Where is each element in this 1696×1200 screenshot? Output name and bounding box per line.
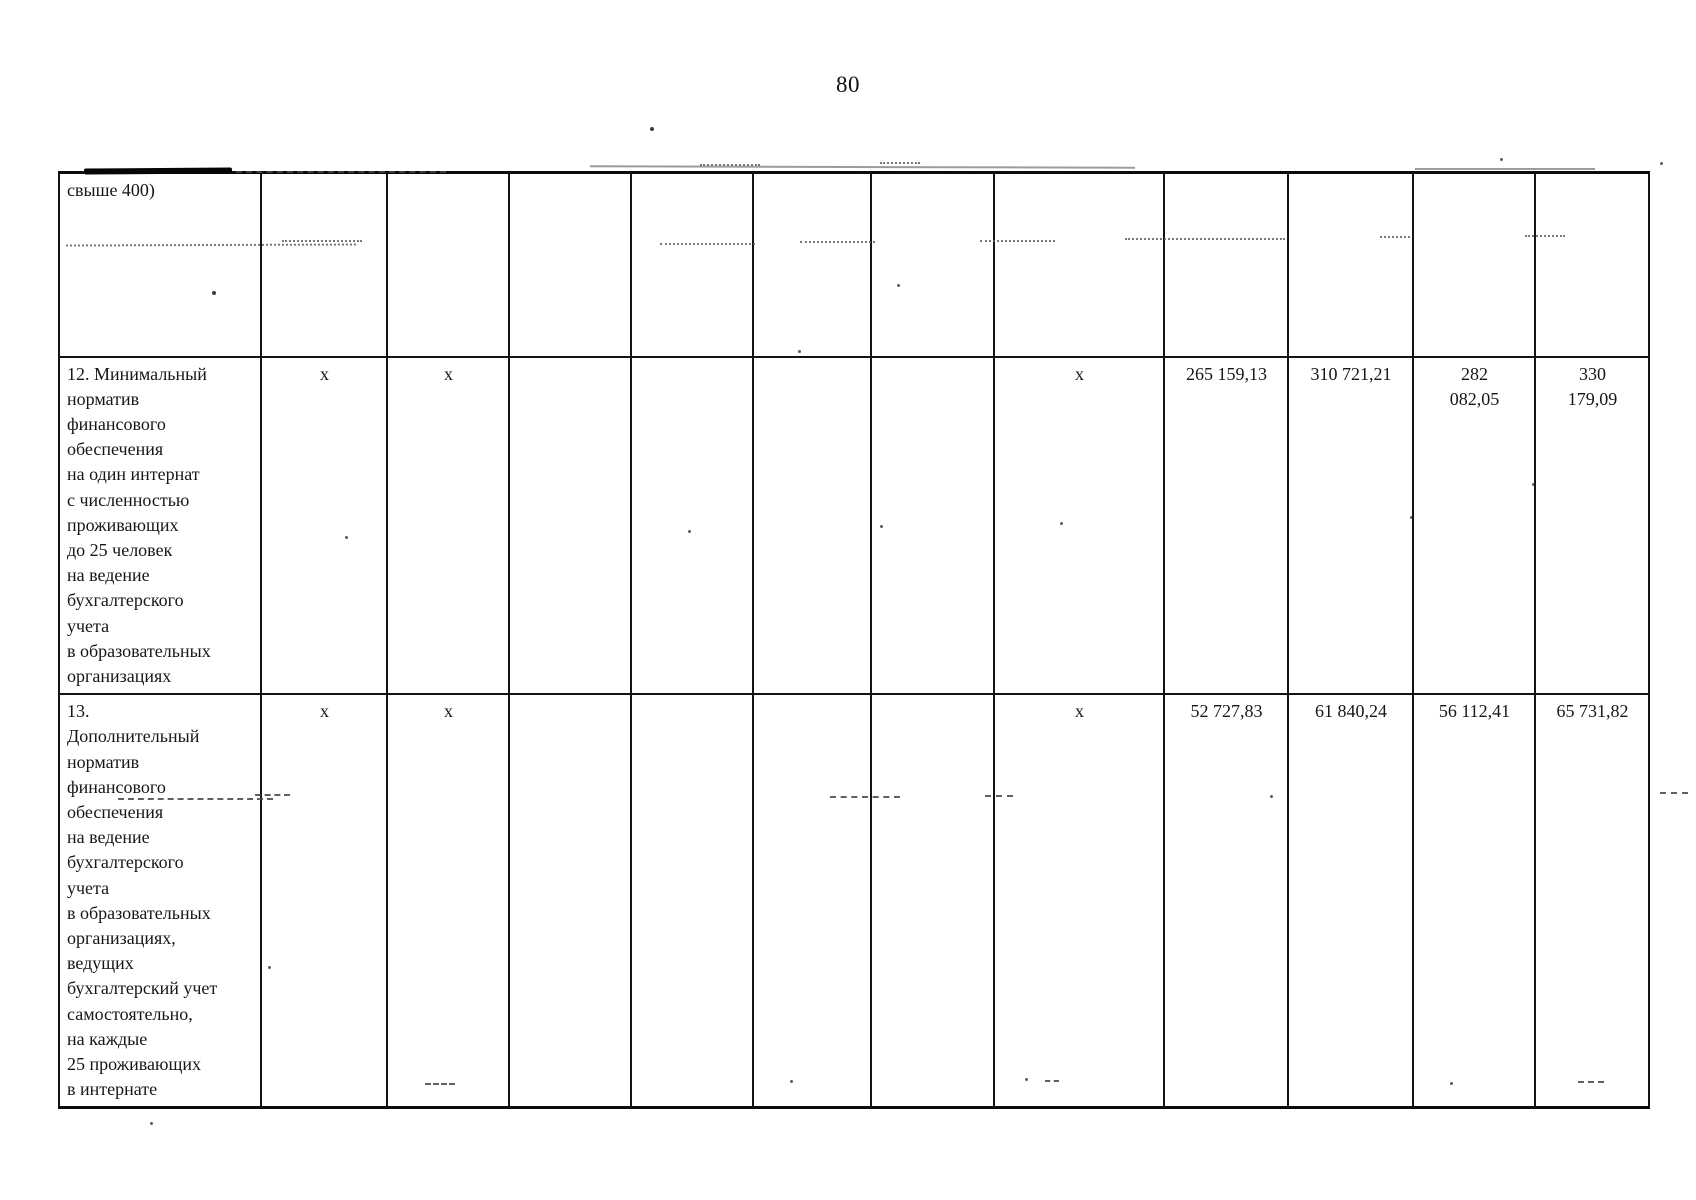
scan-artifact — [700, 164, 760, 166]
table-cell — [261, 173, 387, 357]
table-cell: 265 159,13 — [1164, 357, 1288, 695]
table-cell — [994, 173, 1164, 357]
page-number: 80 — [0, 72, 1696, 98]
table-cell: 61 840,24 — [1288, 694, 1413, 1108]
table-cell — [1535, 173, 1649, 357]
table-cell: 12. Минимальный норматив финансового обе… — [59, 357, 261, 695]
table-cell — [871, 173, 994, 357]
table-cell: 56 112,41 — [1413, 694, 1535, 1108]
table-cell: 282 082,05 — [1413, 357, 1535, 695]
table-cell: х — [261, 357, 387, 695]
table-row-13: 13. Дополнительный норматив финансового … — [59, 694, 1649, 1108]
table-cell: 65 731,82 — [1535, 694, 1649, 1108]
table-cell: х — [994, 694, 1164, 1108]
table-cell — [753, 173, 871, 357]
scan-artifact — [1660, 162, 1663, 165]
scan-artifact — [1415, 168, 1595, 170]
scan-artifact — [650, 127, 654, 131]
table-cell: свыше 400) — [59, 173, 261, 357]
table-cell: 52 727,83 — [1164, 694, 1288, 1108]
scan-artifact — [150, 1122, 153, 1125]
table-cell: 310 721,21 — [1288, 357, 1413, 695]
table-cell — [631, 173, 753, 357]
table-cell — [1164, 173, 1288, 357]
table-cell — [871, 694, 994, 1108]
table-row-continuation: свыше 400) — [59, 173, 1649, 357]
table-cell — [509, 694, 631, 1108]
scan-artifact — [880, 162, 920, 164]
table-cell: х — [387, 694, 509, 1108]
table-cell — [631, 694, 753, 1108]
table-cell: х — [261, 694, 387, 1108]
table-cell — [387, 173, 509, 357]
table-cell: 330 179,09 — [1535, 357, 1649, 695]
table-cell — [1413, 173, 1535, 357]
table-cell — [509, 173, 631, 357]
table-cell: х — [994, 357, 1164, 695]
normatives-table: свыше 400) 12. Минимальный норматив фина… — [58, 171, 1650, 1109]
scan-artifact — [1660, 792, 1688, 794]
table-cell — [753, 357, 871, 695]
scan-artifact — [1500, 158, 1503, 161]
table-row-12: 12. Минимальный норматив финансового обе… — [59, 357, 1649, 695]
table-cell: 13. Дополнительный норматив финансового … — [59, 694, 261, 1108]
table-cell — [753, 694, 871, 1108]
table-cell — [509, 357, 631, 695]
table-cell — [1288, 173, 1413, 357]
scan-artifact — [590, 165, 1135, 168]
table-cell: х — [387, 357, 509, 695]
table-cell — [631, 357, 753, 695]
document-page: 80 свыше 400) — [0, 0, 1696, 1200]
table-cell — [871, 357, 994, 695]
